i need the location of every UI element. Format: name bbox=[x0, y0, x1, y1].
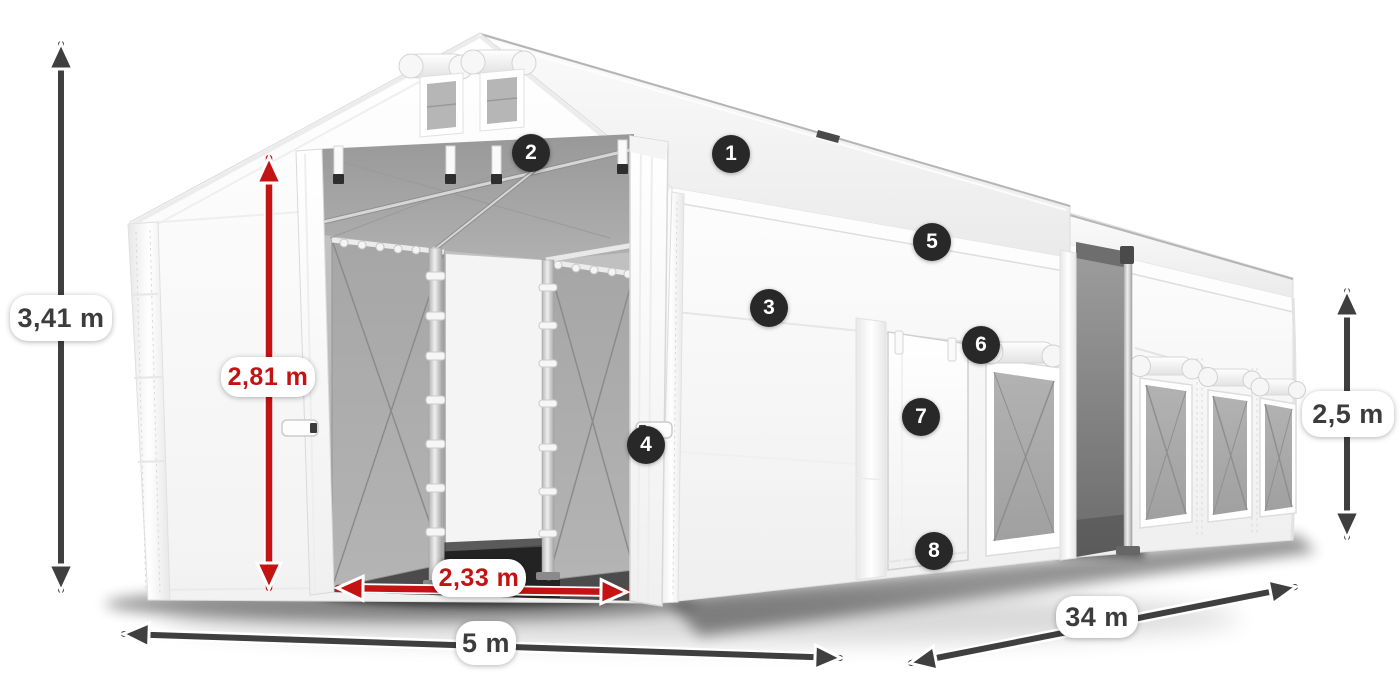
dimension-label-total-height: 3,41 m bbox=[10, 295, 112, 341]
door-tie-handle-left bbox=[282, 420, 318, 436]
feature-marker-7[interactable]: 7 bbox=[902, 398, 940, 436]
feature-marker-5[interactable]: 5 bbox=[913, 223, 951, 261]
side-window bbox=[979, 340, 1064, 556]
feature-marker-6[interactable]: 6 bbox=[962, 326, 1000, 364]
dimension-label-entrance-height: 2,81 m bbox=[221, 357, 315, 397]
tent-dimension-diagram: 3,41 m 2,81 m 2,33 m 5 m 34 m 2,5 m 1 2 … bbox=[0, 0, 1400, 700]
dimension-label-side-height: 2,5 m bbox=[1302, 391, 1394, 437]
feature-marker-3[interactable]: 3 bbox=[750, 289, 788, 327]
front-door-leaf bbox=[630, 136, 668, 606]
interior-mesh-panel-right bbox=[548, 261, 634, 580]
feature-marker-2[interactable]: 2 bbox=[512, 134, 550, 172]
feature-marker-4[interactable]: 4 bbox=[627, 426, 665, 464]
dimension-label-front-width: 5 m bbox=[456, 621, 516, 665]
dimension-label-entrance-width: 2,33 m bbox=[432, 559, 526, 597]
dimension-label-side-length: 34 m bbox=[1056, 596, 1138, 638]
side-open-doorway bbox=[1076, 242, 1140, 557]
tent-rear-section bbox=[1066, 212, 1306, 558]
feature-marker-1[interactable]: 1 bbox=[712, 135, 750, 173]
feature-marker-8[interactable]: 8 bbox=[915, 532, 953, 570]
tent-side-wall bbox=[658, 188, 1076, 603]
tent-illustration bbox=[0, 0, 1400, 700]
front-entrance-interior bbox=[290, 120, 650, 620]
